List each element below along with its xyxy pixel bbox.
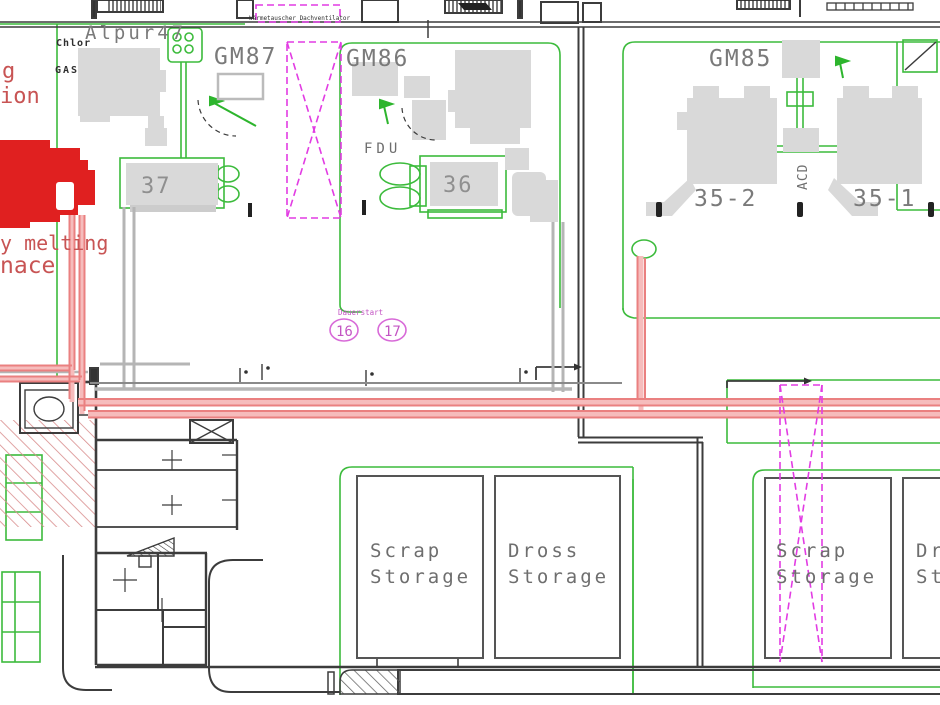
label-gm85: GM85 (709, 46, 772, 72)
tag-note: Dauerstart (338, 308, 383, 317)
gray-equipment (78, 40, 922, 222)
flag-icon (836, 57, 848, 65)
label-dross1-l1: Dross (508, 540, 580, 562)
red-hatch-zone (0, 420, 95, 527)
corner-brace (905, 42, 936, 70)
road-center (209, 560, 340, 692)
label-scrap2-l1: Scrap (776, 540, 848, 562)
label-alpur47: Alpur47 (85, 22, 186, 44)
label-fdu: FDU (364, 141, 401, 157)
rooms-lower (97, 538, 207, 665)
corridor (398, 670, 940, 694)
road-left (63, 555, 112, 690)
roof-fan (107, 0, 161, 11)
floorplan-canvas: Alpur47 GM87 GM86 GM85 FDU 37 36 35-2 35… (0, 0, 940, 705)
label-35-1: 35-1 (853, 186, 916, 212)
label-chlor: Chlor (56, 38, 91, 49)
red-label-1: g (2, 59, 15, 84)
roof-ladder (827, 3, 913, 10)
roof-unit (583, 3, 601, 22)
gm87-box (218, 74, 263, 99)
post (328, 672, 334, 694)
label-station-37: 37 (141, 174, 172, 199)
zone-gm85-bottom (623, 308, 940, 318)
label-gas: GAS (55, 65, 79, 76)
magenta-labels: 16 17 Dauerstart (336, 308, 401, 340)
marker-bar (797, 202, 803, 217)
roof-post (92, 0, 96, 18)
label-acd: ACD (796, 164, 811, 190)
label-35-2: 35-2 (694, 186, 757, 212)
label-station-36: 36 (443, 173, 474, 198)
alpur-degasser (168, 28, 202, 158)
marker-bar (248, 203, 252, 217)
rooms-upper (85, 382, 238, 665)
tag-17: 17 (384, 324, 401, 340)
red-label-4: nace (0, 253, 55, 279)
label-dross1-l2: Storage (508, 566, 609, 588)
corridor-ramp (340, 670, 400, 694)
alpur-block (78, 48, 167, 146)
tap-circle (632, 240, 656, 258)
roof-unit (362, 0, 398, 22)
label-gm87: GM87 (214, 44, 277, 70)
station-37-base (130, 205, 216, 212)
roof-unit (541, 2, 578, 23)
label-dross2-l2: Storage (916, 566, 940, 588)
flag-icon (380, 100, 392, 108)
green-grid-lower (2, 572, 40, 662)
label-scrap1-l2: Storage (370, 566, 471, 588)
flag-line (384, 106, 388, 124)
marker-bar (656, 202, 662, 217)
tag-16: 16 (336, 324, 353, 340)
marker-bar (362, 200, 366, 215)
red-label-2: ion (0, 84, 40, 109)
furnace-channel (56, 182, 74, 210)
roof-fan (738, 0, 789, 8)
stairs (127, 538, 174, 556)
label-scrap2-l2: Storage (776, 566, 877, 588)
label-dross2-l1: Dross (916, 540, 940, 562)
flag-line (840, 63, 843, 78)
crane-zone-1 (287, 42, 341, 218)
leader-arrows (536, 364, 812, 389)
red-label-3: y melting (0, 231, 108, 255)
melting-furnace (0, 140, 95, 228)
fan-arrow (458, 3, 492, 10)
label-gm86: GM86 (346, 46, 409, 72)
flag-line (214, 103, 256, 126)
label-roof-note: Wärmetauscher Dachventilator (249, 15, 351, 22)
label-scrap1-l1: Scrap (370, 540, 442, 562)
red-pipes (0, 215, 940, 418)
station-37-body (126, 163, 218, 205)
marker-bar (928, 202, 934, 217)
roof-post (518, 0, 522, 18)
plant-floorplan: Alpur47 GM87 GM86 GM85 FDU 37 36 35-2 35… (0, 0, 940, 705)
